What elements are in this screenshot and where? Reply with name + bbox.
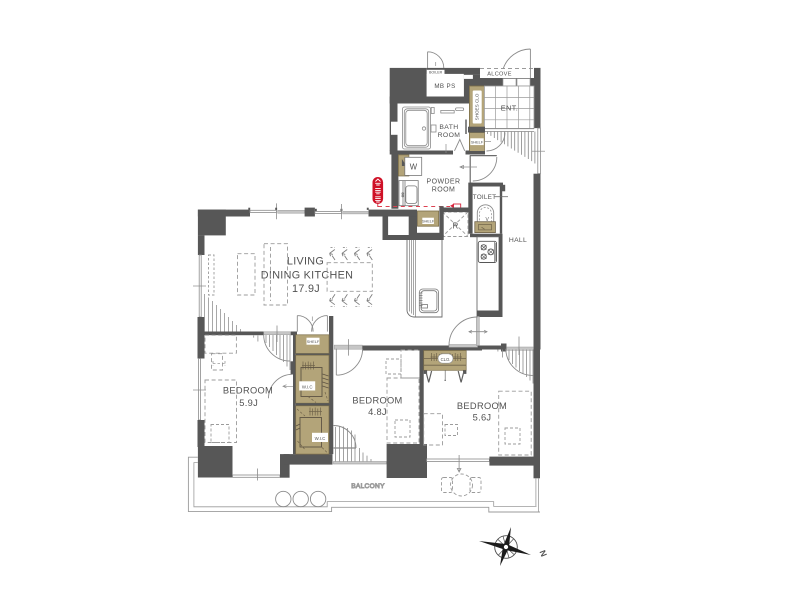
svg-text:DINING KITCHEN: DINING KITCHEN <box>261 269 353 281</box>
svg-text:SHOES CLO: SHOES CLO <box>475 93 480 120</box>
svg-text:SHELF: SHELF <box>422 220 435 224</box>
svg-text:17.9J: 17.9J <box>292 283 320 295</box>
svg-text:BATH: BATH <box>439 124 458 131</box>
svg-text:BALCONY: BALCONY <box>351 483 385 490</box>
svg-text:BEDROOM: BEDROOM <box>457 401 507 411</box>
svg-text:N: N <box>537 549 549 558</box>
svg-text:ROOM: ROOM <box>432 187 455 194</box>
svg-text:W: W <box>410 162 418 171</box>
svg-text:5.6J: 5.6J <box>473 413 492 423</box>
svg-text:5.9J: 5.9J <box>239 398 258 408</box>
svg-text:POWDER: POWDER <box>427 179 461 186</box>
svg-text:BOILER: BOILER <box>429 70 443 74</box>
svg-text:LIVING: LIVING <box>287 256 324 268</box>
svg-text:R: R <box>453 221 459 230</box>
svg-text:HALL: HALL <box>509 237 527 244</box>
svg-text:TOILET: TOILET <box>473 194 496 201</box>
svg-text:BEDROOM: BEDROOM <box>352 396 402 406</box>
svg-text:ALCOVE: ALCOVE <box>487 72 512 78</box>
svg-text:W.I.C: W.I.C <box>315 436 326 441</box>
svg-text:MB PS: MB PS <box>434 83 455 90</box>
svg-text:BEDROOM: BEDROOM <box>223 386 273 396</box>
svg-text:ENT.: ENT. <box>501 104 518 113</box>
svg-text:SHELF: SHELF <box>307 339 320 344</box>
svg-text:ROOM: ROOM <box>438 132 461 139</box>
svg-text:SHELF: SHELF <box>471 140 484 144</box>
svg-text:4.8J: 4.8J <box>368 407 387 417</box>
svg-text:CLO.: CLO. <box>441 357 451 362</box>
svg-text:W.I.C: W.I.C <box>302 384 313 389</box>
